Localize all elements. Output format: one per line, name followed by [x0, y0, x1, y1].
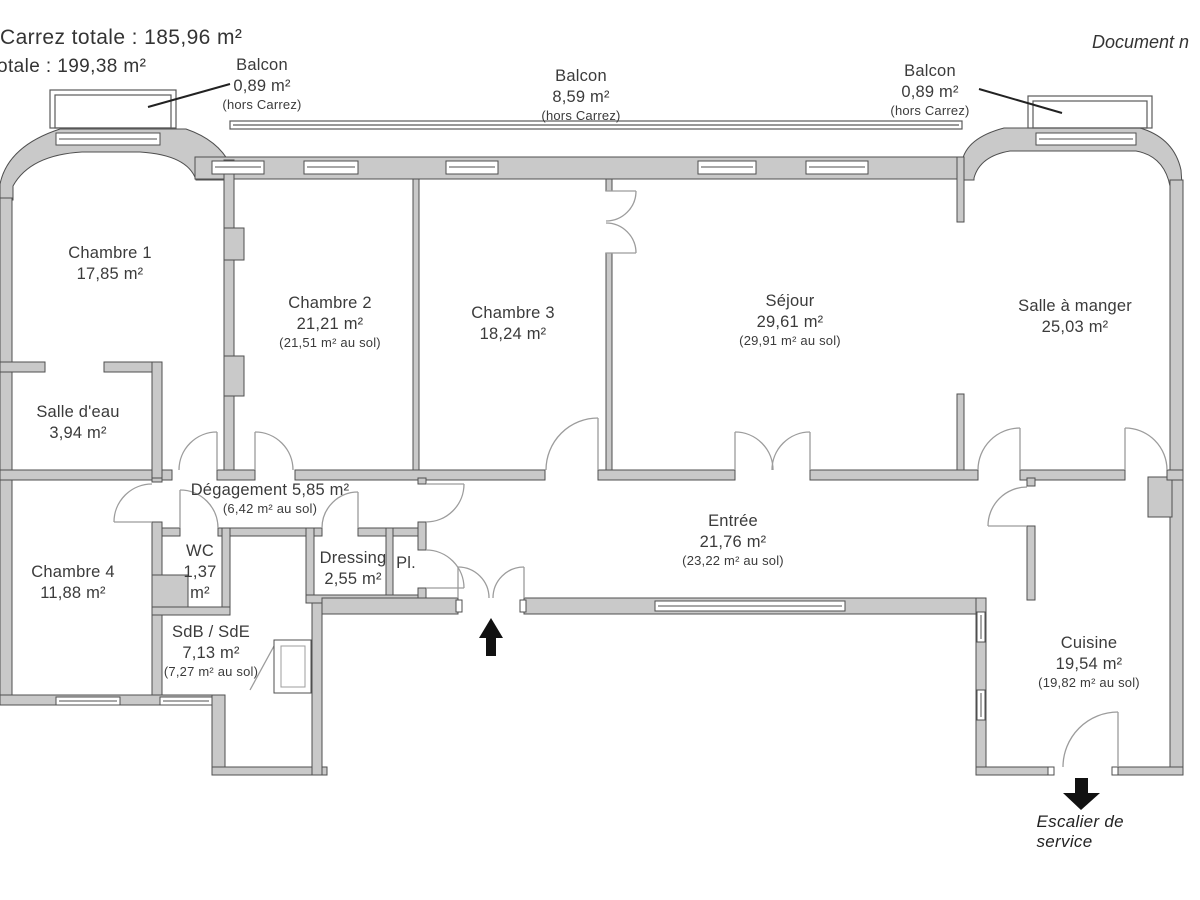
balcony-name: Balcon: [222, 55, 301, 76]
surface-carrez-total: Carrez totale : 185,96 m²: [0, 26, 242, 50]
room-label-dressing: Dressing 2,55 m²: [320, 548, 387, 590]
room-name: Salle d'eau: [36, 402, 119, 423]
room-name: WC: [184, 541, 217, 562]
balcony-area: 0,89 m²: [890, 82, 969, 103]
room-name: Dressing: [320, 548, 387, 569]
room-floor-area: (29,91 m² au sol): [739, 333, 841, 350]
floorplan-drawing: [0, 0, 1200, 900]
room-area: 1,37: [184, 562, 217, 583]
room-floor-area: (21,51 m² au sol): [279, 335, 381, 352]
room-label-degagement: Dégagement 5,85 m² (6,42 m² au sol): [191, 480, 350, 518]
room-floor-area: (19,82 m² au sol): [1038, 675, 1140, 692]
room-area: 25,03 m²: [1018, 317, 1132, 338]
floorplan-page: Carrez totale : 185,96 m² otale : 199,38…: [0, 0, 1200, 900]
room-label-chambre-3: Chambre 3 18,24 m²: [471, 303, 554, 345]
room-label-sdb: SdB / SdE 7,13 m² (7,27 m² au sol): [164, 622, 258, 681]
service-stair-label: Escalier de service: [1037, 812, 1146, 852]
room-area: 2,55 m²: [320, 569, 387, 590]
balcony-note: (hors Carrez): [541, 108, 620, 125]
balcony-note: (hors Carrez): [222, 97, 301, 114]
room-name: SdB / SdE: [164, 622, 258, 643]
balcony-left-railing: [50, 90, 176, 128]
room-label-cuisine: Cuisine 19,54 m² (19,82 m² au sol): [1038, 633, 1140, 692]
room-floor-area: (6,42 m² au sol): [191, 501, 350, 518]
balcony-name: Balcon: [890, 61, 969, 82]
room-name: Dégagement 5,85 m²: [191, 480, 350, 501]
balcony-label-right: Balcon 0,89 m² (hors Carrez): [890, 61, 969, 120]
balcony-name: Balcon: [541, 66, 620, 87]
room-name: Salle à manger: [1018, 296, 1132, 317]
room-area: 21,21 m²: [279, 314, 381, 335]
room-name: Pl.: [396, 553, 416, 574]
room-floor-area: (23,22 m² au sol): [682, 553, 784, 570]
room-name: Entrée: [682, 511, 784, 532]
room-label-chambre-1: Chambre 1 17,85 m²: [68, 243, 151, 285]
room-label-salle-a-manger: Salle à manger 25,03 m²: [1018, 296, 1132, 338]
room-area: 19,54 m²: [1038, 654, 1140, 675]
room-name: Chambre 1: [68, 243, 151, 264]
sdb-fixture: [274, 640, 311, 693]
balcony-area: 0,89 m²: [222, 76, 301, 97]
room-area: 21,76 m²: [682, 532, 784, 553]
room-label-sejour: Séjour 29,61 m² (29,91 m² au sol): [739, 291, 841, 350]
room-area: 18,24 m²: [471, 324, 554, 345]
room-floor-area: (7,27 m² au sol): [164, 664, 258, 681]
balcony-label-left: Balcon 0,89 m² (hors Carrez): [222, 55, 301, 114]
room-label-chambre-4: Chambre 4 11,88 m²: [31, 562, 114, 604]
room-name: Chambre 4: [31, 562, 114, 583]
room-name: Séjour: [739, 291, 841, 312]
room-label-entree: Entrée 21,76 m² (23,22 m² au sol): [682, 511, 784, 570]
room-area-unit: m²: [184, 583, 217, 604]
document-note: Document n: [1092, 32, 1189, 53]
room-name: Cuisine: [1038, 633, 1140, 654]
room-name: Chambre 2: [279, 293, 381, 314]
room-label-placard: Pl.: [396, 553, 416, 574]
balcony-label-center: Balcon 8,59 m² (hors Carrez): [541, 66, 620, 125]
balcony-note: (hors Carrez): [890, 103, 969, 120]
service-stair-arrow-icon: [1063, 778, 1100, 810]
balcony-area: 8,59 m²: [541, 87, 620, 108]
room-area: 7,13 m²: [164, 643, 258, 664]
room-name: Chambre 3: [471, 303, 554, 324]
surface-total: otale : 199,38 m²: [0, 56, 146, 78]
room-area: 29,61 m²: [739, 312, 841, 333]
room-area: 3,94 m²: [36, 423, 119, 444]
room-label-salle-deau: Salle d'eau 3,94 m²: [36, 402, 119, 444]
room-area: 11,88 m²: [31, 583, 114, 604]
room-area: 17,85 m²: [68, 264, 151, 285]
entrance-arrow-icon: [479, 618, 503, 656]
room-label-chambre-2: Chambre 2 21,21 m² (21,51 m² au sol): [279, 293, 381, 352]
arrows: [479, 618, 1100, 810]
room-label-wc: WC 1,37 m²: [184, 541, 217, 604]
